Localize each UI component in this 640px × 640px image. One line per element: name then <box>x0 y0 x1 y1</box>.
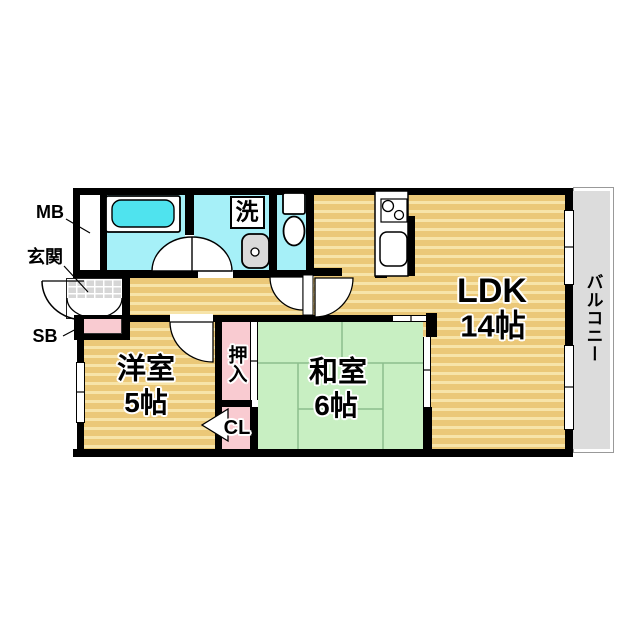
label-oshiire: 押入 <box>227 345 246 383</box>
fixtures-layer <box>0 0 640 640</box>
genkan-step-curves <box>67 298 122 318</box>
bathtub-icon <box>106 196 180 232</box>
label-shoe-box: SB <box>32 327 57 345</box>
toilet-icon <box>283 193 305 246</box>
label-meter-box: MB <box>36 203 64 221</box>
label-western-room-name: 洋室 <box>117 356 175 385</box>
label-ldk-size: 14帖 <box>460 311 525 342</box>
label-western-room-size: 5帖 <box>124 389 168 417</box>
label-japanese-room-size: 6帖 <box>314 392 358 420</box>
hallway-door-arc <box>270 277 303 310</box>
kitchen-unit-icon <box>375 191 408 276</box>
ldk-door-arc <box>303 275 353 317</box>
sink-icon <box>242 234 269 268</box>
label-laundry: 洗 <box>236 201 259 224</box>
label-balcony: バルコニー <box>585 273 602 363</box>
floor-plan: MB 玄関 SB 洗 LDK 14帖 洋室 5帖 和室 6帖 押入 CL バルコ… <box>0 0 640 640</box>
bathroom-door-arc <box>152 237 232 271</box>
label-japanese-room-name: 和室 <box>309 359 367 388</box>
western-room-door-arc <box>170 314 213 362</box>
label-ldk-name: LDK <box>457 274 527 308</box>
leader-lines <box>63 219 90 336</box>
label-cl: CL <box>224 418 251 438</box>
label-entrance: 玄関 <box>27 248 63 266</box>
